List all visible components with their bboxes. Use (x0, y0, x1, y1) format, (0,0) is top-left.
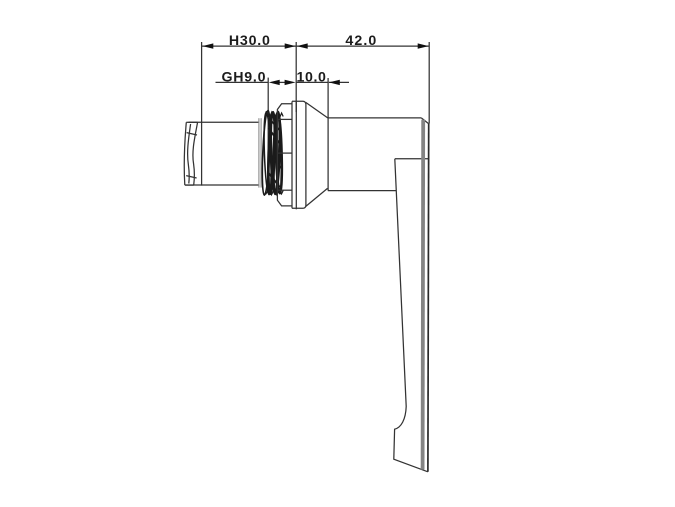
svg-text:GH9.0: GH9.0 (222, 69, 267, 85)
svg-text:42.0: 42.0 (345, 33, 377, 49)
svg-text:10.0: 10.0 (296, 69, 326, 85)
svg-text:H30.0: H30.0 (229, 33, 271, 49)
